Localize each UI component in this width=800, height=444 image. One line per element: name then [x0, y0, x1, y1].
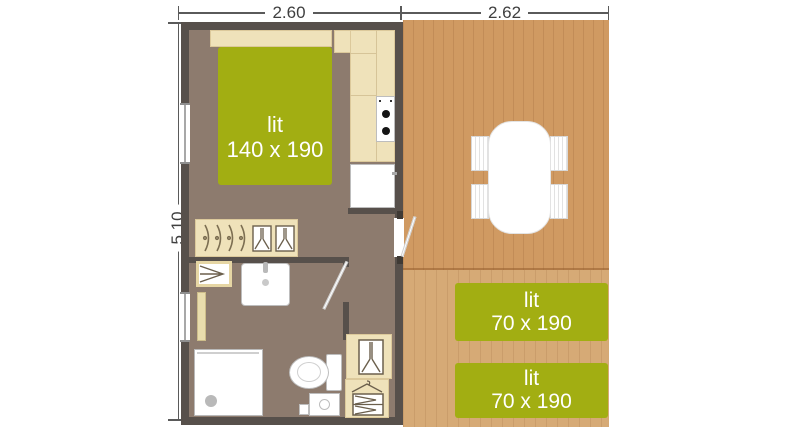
shower-drain-icon	[205, 395, 217, 407]
hanger-shelf-icon	[346, 380, 388, 417]
single-bed-top-size: 70 x 190	[491, 312, 572, 336]
wardrobe-strip	[195, 219, 298, 257]
knob-icon	[379, 100, 381, 102]
double-bed: lit 140 x 190	[218, 47, 332, 185]
hanger-rail-icon	[196, 220, 297, 256]
chair	[550, 184, 568, 219]
wardrobe-icon	[347, 335, 391, 378]
window-pane-line	[184, 105, 186, 162]
knob-icon	[390, 100, 392, 102]
counter-divider	[350, 95, 377, 96]
fridge-handle	[392, 172, 397, 175]
counter-divider	[350, 53, 377, 54]
closet-upper	[346, 334, 392, 379]
bathroom-window	[180, 292, 190, 342]
shelf-icon	[199, 264, 229, 284]
chair	[471, 184, 489, 219]
dim-top-left: 2.60	[178, 3, 400, 23]
single-bed-top: lit 70 x 190	[455, 283, 608, 341]
deck-seam-line	[403, 268, 609, 270]
window-pane-line	[184, 294, 186, 340]
shower	[194, 349, 263, 416]
fridge	[350, 164, 395, 208]
single-bed-top-label: lit	[524, 289, 539, 312]
small-unit	[299, 404, 309, 415]
sink	[241, 263, 290, 306]
door-post	[397, 211, 403, 219]
chair	[471, 136, 489, 171]
floor-plan: 2.60 2.62 5.10 lit 140 x 190	[0, 0, 800, 444]
door-post	[397, 256, 403, 264]
dim-top-left-label: 2.60	[265, 3, 312, 23]
double-bed-size: 140 x 190	[227, 137, 324, 163]
single-bed-bottom-label: lit	[524, 367, 539, 390]
burner-icon	[382, 110, 390, 118]
radiator	[197, 292, 206, 341]
heater-dial-icon	[319, 399, 330, 410]
bedroom-window	[180, 103, 190, 164]
burner-icon	[382, 127, 390, 135]
shower-door-line	[197, 352, 259, 354]
closet-lower	[345, 379, 389, 418]
double-bed-label: lit	[267, 112, 283, 137]
shelf-cabinet	[196, 261, 232, 287]
bed-headboard	[210, 30, 332, 47]
water-heater	[309, 393, 340, 416]
dining-table	[488, 121, 551, 234]
single-bed-bottom: lit 70 x 190	[455, 363, 608, 418]
wall-below-kitchen	[348, 208, 395, 214]
single-bed-bottom-size: 70 x 190	[491, 390, 572, 414]
cooktop	[376, 96, 395, 142]
toilet-bowl-inner	[297, 362, 321, 382]
drain-icon	[262, 279, 269, 286]
chair	[550, 136, 568, 171]
faucet-icon	[263, 262, 268, 273]
